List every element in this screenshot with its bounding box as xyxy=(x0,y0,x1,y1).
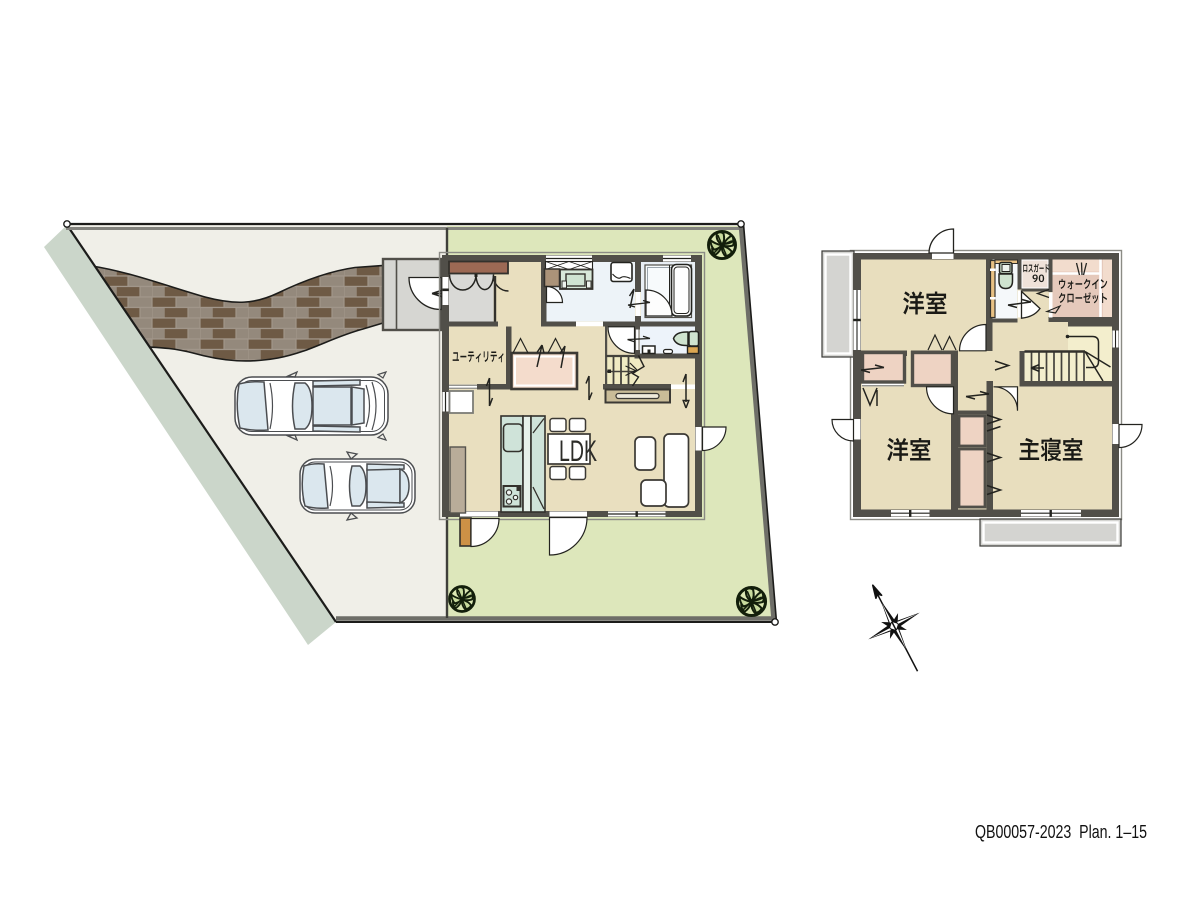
svg-text:LDK: LDK xyxy=(559,435,597,468)
svg-text:QB00057-2023 Plan. 1–15: QB00057-2023 Plan. 1–15 xyxy=(975,821,1147,842)
